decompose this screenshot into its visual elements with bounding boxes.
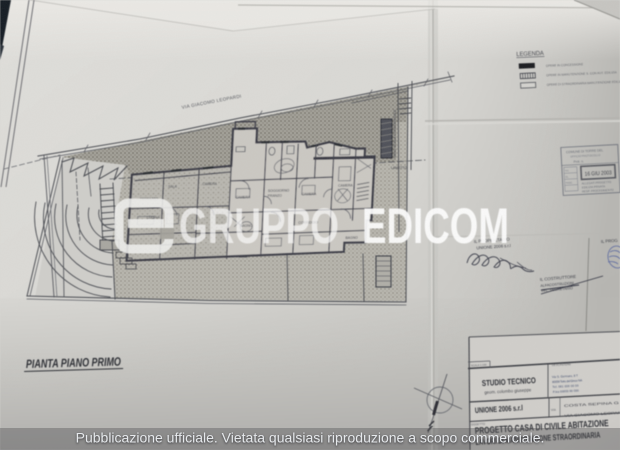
- svg-text:Pubblicazione ufficiale. Vieta: Pubblicazione ufficiale. Vietata qualsia…: [76, 430, 545, 446]
